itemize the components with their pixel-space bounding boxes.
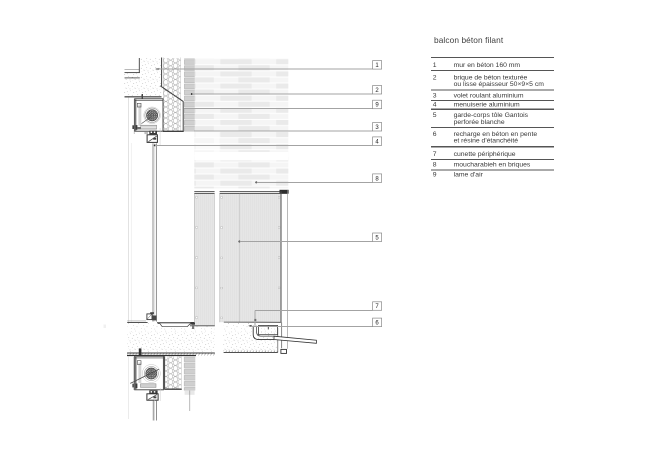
- svg-text:3: 3: [433, 93, 437, 100]
- svg-text:8: 8: [433, 162, 437, 169]
- svg-text:lame d'air: lame d'air: [454, 172, 484, 179]
- svg-text:volet roulant aluminium: volet roulant aluminium: [454, 93, 524, 100]
- svg-text:1: 1: [433, 62, 437, 69]
- svg-text:6: 6: [433, 131, 437, 138]
- svg-text:5: 5: [433, 112, 437, 119]
- svg-text:perforée blanche: perforée blanche: [454, 119, 505, 126]
- svg-text:ou lisse épaisseur 50×9×5 cm: ou lisse épaisseur 50×9×5 cm: [454, 81, 545, 88]
- svg-text:9: 9: [433, 172, 437, 179]
- svg-text:menuiserie aluminium: menuiserie aluminium: [454, 101, 520, 108]
- svg-text:et résine d'étanchéité: et résine d'étanchéité: [454, 138, 519, 145]
- svg-text:balcon béton filant: balcon béton filant: [434, 35, 504, 45]
- svg-text:mur en béton 160 mm: mur en béton 160 mm: [454, 62, 521, 69]
- svg-text:7: 7: [433, 151, 437, 158]
- svg-text:2: 2: [433, 74, 437, 81]
- svg-text:cunette périphérique: cunette périphérique: [454, 151, 516, 158]
- svg-text:4: 4: [433, 101, 437, 108]
- svg-text:moucharabieh en briques: moucharabieh en briques: [454, 162, 531, 169]
